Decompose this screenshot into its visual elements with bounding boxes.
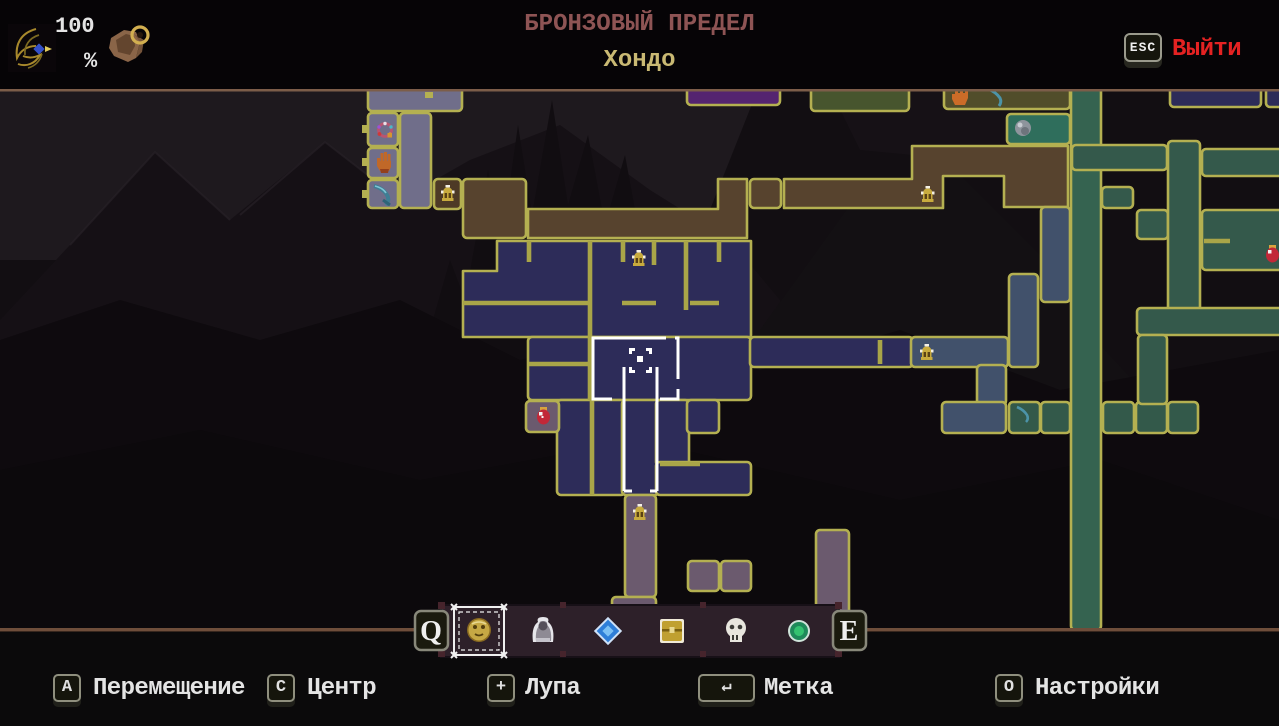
svg-text:Q: Q — [420, 616, 442, 647]
svg-text:E: E — [840, 616, 859, 647]
